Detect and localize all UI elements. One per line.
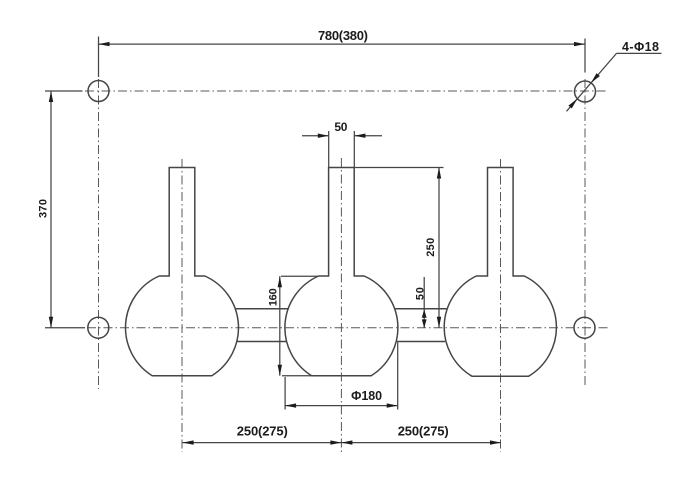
svg-text:250: 250 — [425, 238, 437, 257]
svg-text:250(275): 250(275) — [237, 423, 288, 438]
svg-text:Φ180: Φ180 — [351, 389, 382, 403]
svg-text:160: 160 — [268, 288, 280, 306]
svg-text:250(275): 250(275) — [398, 423, 449, 438]
svg-text:50: 50 — [334, 120, 347, 134]
svg-text:780(380): 780(380) — [318, 28, 368, 43]
svg-text:370: 370 — [37, 199, 49, 218]
svg-text:50: 50 — [415, 287, 427, 300]
svg-text:4-Φ18: 4-Φ18 — [622, 40, 659, 54]
